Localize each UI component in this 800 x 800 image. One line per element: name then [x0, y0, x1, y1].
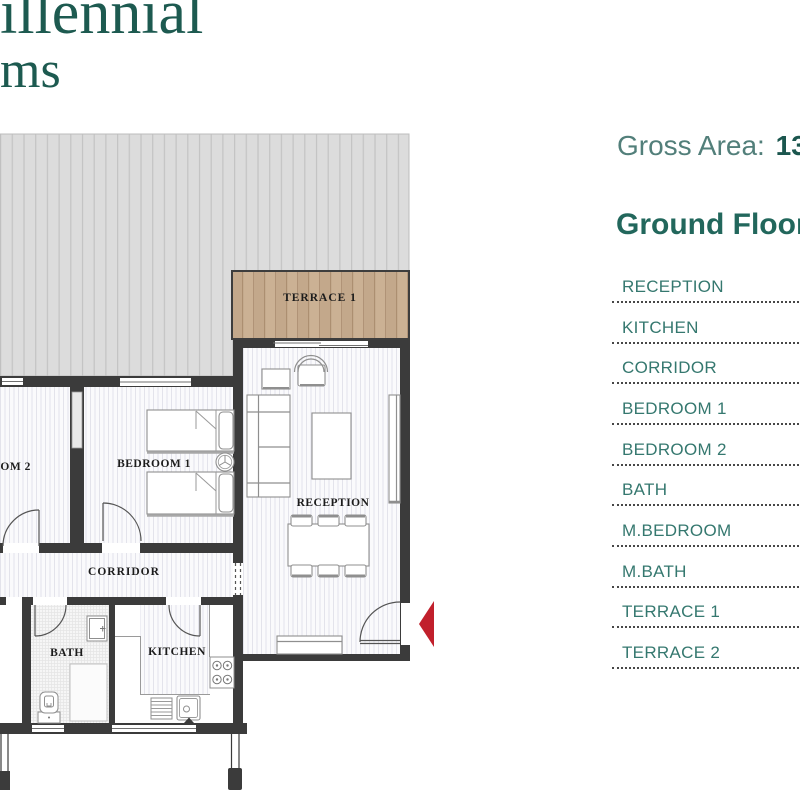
svg-text:CORRIDOR: CORRIDOR [88, 566, 160, 578]
svg-text:KITCHEN: KITCHEN [148, 646, 206, 658]
svg-text:BEDROOM 2: BEDROOM 2 [0, 461, 31, 473]
svg-text:BATH: BATH [50, 647, 84, 659]
svg-text:TERRACE 1: TERRACE 1 [283, 292, 357, 304]
svg-text:BEDROOM 1: BEDROOM 1 [117, 458, 191, 470]
svg-text:RECEPTION: RECEPTION [297, 497, 370, 509]
